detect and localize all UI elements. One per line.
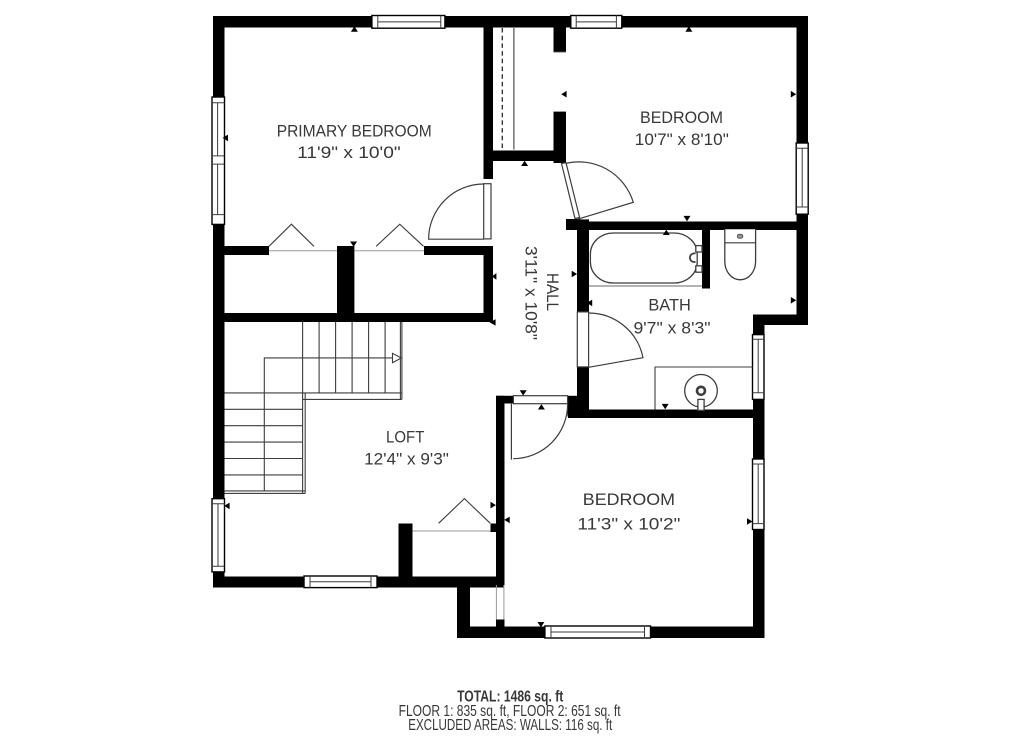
svg-text:9'7" x 8'3": 9'7" x 8'3" (634, 319, 711, 337)
svg-text:LOFT: LOFT (386, 429, 424, 447)
svg-text:BEDROOM: BEDROOM (583, 491, 675, 509)
svg-text:BATH: BATH (648, 297, 691, 315)
svg-text:11'3" x 10'2": 11'3" x 10'2" (577, 516, 680, 534)
svg-text:11'9" x 10'0": 11'9" x 10'0" (297, 144, 401, 162)
svg-text:12'4" x 9'3": 12'4" x 9'3" (364, 451, 449, 469)
svg-text:PRIMARY BEDROOM: PRIMARY BEDROOM (277, 122, 432, 140)
svg-text:BEDROOM: BEDROOM (640, 109, 723, 127)
svg-text:HALL: HALL (543, 273, 561, 311)
svg-text:10'7" x 8'10": 10'7" x 8'10" (635, 131, 729, 149)
svg-text:EXCLUDED AREAS: WALLS: 116 sq.: EXCLUDED AREAS: WALLS: 116 sq. ft (408, 717, 613, 734)
svg-text:3'11" x 10'8": 3'11" x 10'8" (522, 246, 540, 340)
